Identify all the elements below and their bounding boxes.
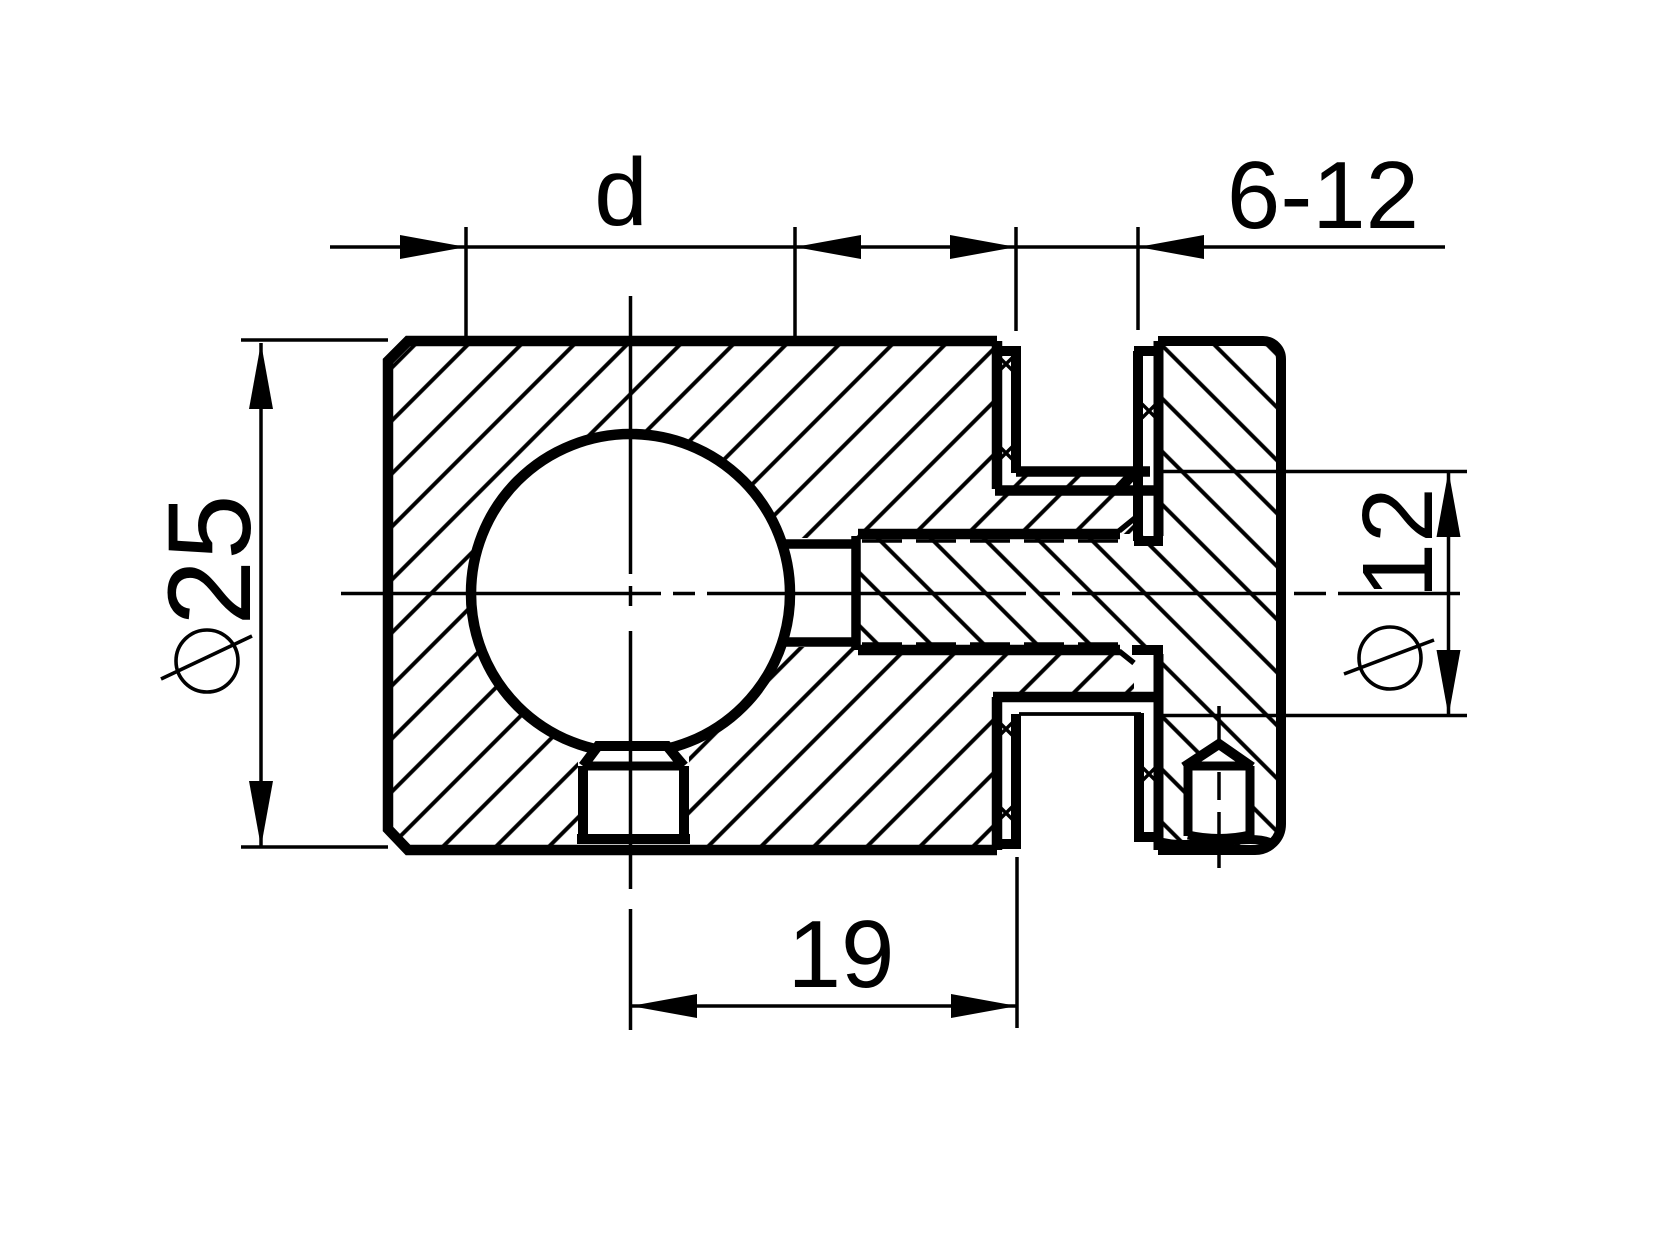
svg-text:6-12: 6-12 [1227,142,1419,249]
svg-text:25: 25 [144,494,276,625]
svg-text:19: 19 [788,901,895,1008]
svg-text:12: 12 [1342,487,1454,598]
svg-text:d: d [594,139,647,246]
